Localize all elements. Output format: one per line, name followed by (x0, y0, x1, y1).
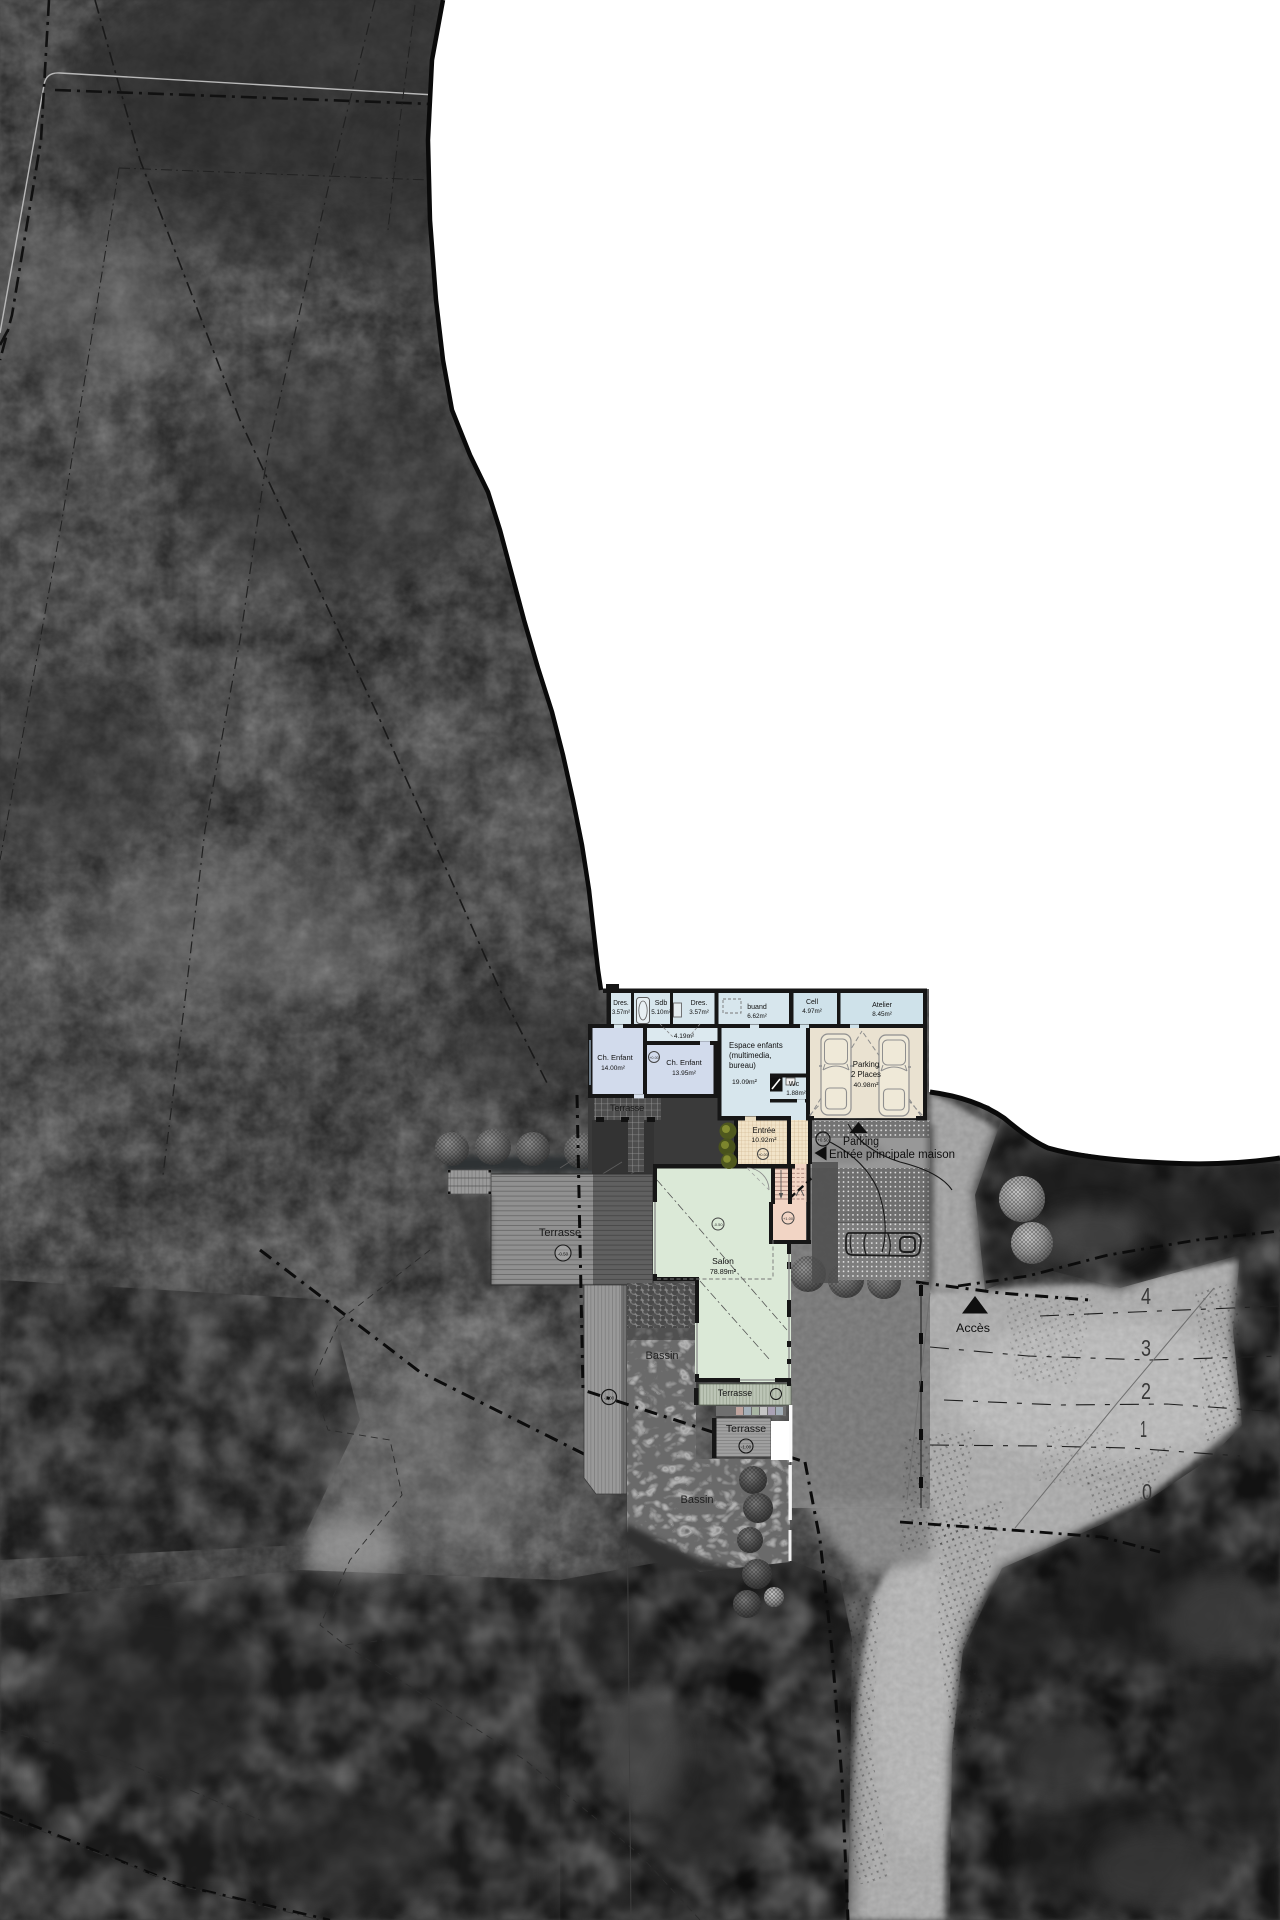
svg-text:4.97m²: 4.97m² (802, 1008, 822, 1015)
svg-text:Entrée principale maison: Entrée principale maison (829, 1149, 955, 1161)
svg-text:40.98m²: 40.98m² (854, 1082, 880, 1089)
svg-text:Parking: Parking (853, 1060, 879, 1069)
svg-text:Ch. Enfant: Ch. Enfant (597, 1053, 633, 1062)
svg-text:19.09m²: 19.09m² (732, 1079, 758, 1086)
svg-text:3.57m²: 3.57m² (612, 1010, 630, 1016)
svg-text:buand: buand (747, 1004, 767, 1011)
svg-text:+0.00: +0.00 (758, 1153, 768, 1157)
svg-text:Terrasse: Terrasse (539, 1227, 581, 1239)
svg-text:13.95m²: 13.95m² (672, 1070, 697, 1077)
svg-text:+0.00: +0.00 (649, 1056, 659, 1060)
svg-text:14.00m²: 14.00m² (601, 1065, 626, 1072)
svg-text:(multimedia,: (multimedia, (729, 1051, 771, 1060)
svg-text:Sdb: Sdb (655, 1000, 668, 1007)
svg-text:3: 3 (1141, 1335, 1151, 1361)
svg-text:4.19m²: 4.19m² (674, 1033, 695, 1040)
svg-text:Salon: Salon (712, 1256, 734, 1266)
svg-text:Ch. Enfant: Ch. Enfant (666, 1058, 702, 1067)
svg-text:Cell: Cell (806, 999, 819, 1006)
svg-text:5.10m²: 5.10m² (651, 1009, 671, 1016)
svg-text:Terrasse: Terrasse (718, 1388, 753, 1398)
svg-text:Bassin: Bassin (680, 1494, 713, 1506)
svg-text:0: 0 (1142, 1479, 1152, 1505)
svg-text:3.57m²: 3.57m² (689, 1009, 709, 1016)
svg-text:Dres.: Dres. (691, 1000, 708, 1007)
svg-text:Bassin: Bassin (645, 1350, 678, 1362)
svg-text:-0.50: -0.50 (558, 1252, 569, 1257)
svg-text:4: 4 (1141, 1283, 1151, 1309)
svg-text:Wc: Wc (789, 1079, 800, 1088)
svg-text:1.88m²: 1.88m² (786, 1090, 806, 1097)
svg-text:+0.50: +0.50 (817, 1138, 829, 1143)
svg-text:Entrée: Entrée (753, 1126, 776, 1135)
svg-text:Espace enfants: Espace enfants (729, 1041, 783, 1050)
svg-text:78.89m²: 78.89m² (710, 1267, 737, 1276)
svg-text:-0.50: -0.50 (713, 1222, 723, 1227)
svg-text:2: 2 (1141, 1378, 1151, 1404)
svg-text:bureau): bureau) (729, 1061, 756, 1070)
svg-text:Atelier: Atelier (872, 1002, 893, 1009)
svg-text:6.62m²: 6.62m² (747, 1013, 767, 1020)
svg-text:10.92m²: 10.92m² (752, 1137, 778, 1144)
svg-text:+1.00: +1.00 (783, 1216, 794, 1221)
svg-text:Terrasse: Terrasse (610, 1103, 644, 1114)
svg-text:Parking: Parking (843, 1136, 879, 1148)
svg-text:-1.00: -1.00 (741, 1445, 752, 1450)
svg-text:8.45m²: 8.45m² (872, 1011, 892, 1018)
svg-text:Terrasse: Terrasse (726, 1423, 766, 1435)
svg-text:Accès: Accès (956, 1323, 990, 1335)
svg-text:1: 1 (1140, 1416, 1147, 1442)
svg-text:Dres.: Dres. (613, 1000, 628, 1007)
svg-text:2 Places: 2 Places (851, 1070, 881, 1079)
